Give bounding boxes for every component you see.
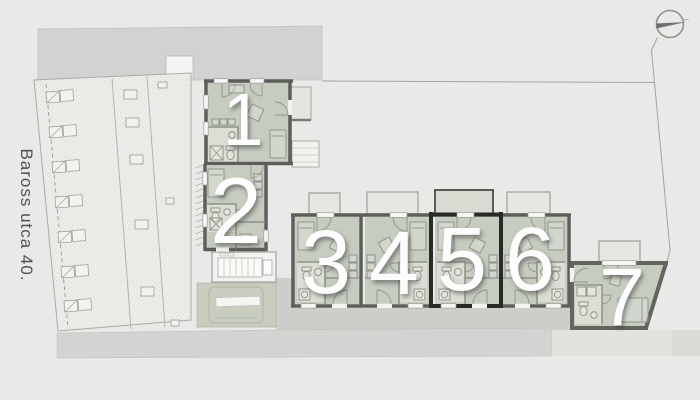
street-name-label: Baross utca 40. <box>17 148 36 281</box>
unit-1-steps <box>292 141 319 167</box>
floor-plan-canvas: 1 2 3 4 5 6 7 Baross utca 40. <box>0 0 700 400</box>
unit-7-label[interactable]: 7 <box>599 252 645 343</box>
unit-4-label[interactable]: 4 <box>369 214 419 314</box>
unit-1-label[interactable]: 1 <box>222 78 263 161</box>
pavement-band <box>57 328 552 358</box>
street-band <box>38 26 322 80</box>
pavement-right-edge <box>672 330 700 356</box>
unit-1-balcony <box>291 87 311 120</box>
unit-6-label[interactable]: 6 <box>505 210 555 310</box>
site-plan-drawing: 1 2 3 4 5 6 7 Baross utca 40. <box>0 0 700 400</box>
old-building <box>34 73 191 331</box>
unit-3-label[interactable]: 3 <box>301 213 351 313</box>
unit-2-label[interactable]: 2 <box>210 158 262 263</box>
parking-space <box>197 283 276 327</box>
unit-5-label[interactable]: 5 <box>437 210 487 310</box>
